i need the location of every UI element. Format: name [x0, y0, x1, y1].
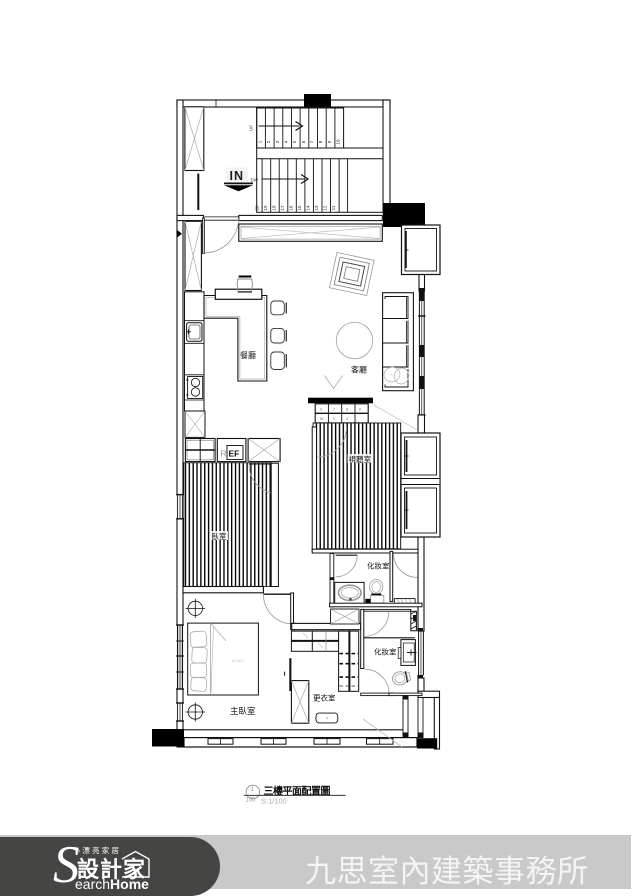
svg-text:視聽室: 視聽室	[349, 454, 372, 464]
svg-text:8: 8	[346, 408, 348, 412]
svg-text:17: 17	[280, 205, 285, 211]
svg-text:10: 10	[336, 139, 341, 145]
svg-text:更衣室: 更衣室	[313, 693, 336, 703]
svg-text:R: R	[221, 449, 227, 459]
svg-text:6: 6	[359, 408, 361, 412]
svg-text:14: 14	[306, 205, 311, 211]
svg-text:20: 20	[255, 205, 260, 211]
svg-text:臥室: 臥室	[212, 531, 227, 541]
svg-text:EF: EF	[229, 449, 240, 459]
svg-text:DW: DW	[251, 178, 259, 183]
svg-text:W: W	[320, 417, 324, 421]
svg-text:客廳: 客廳	[351, 365, 367, 375]
svg-text:100: 100	[246, 798, 257, 804]
svg-text:6'2x6'2: 6'2x6'2	[232, 658, 245, 663]
svg-text:18: 18	[271, 205, 276, 211]
svg-text:12: 12	[323, 205, 328, 211]
svg-text:9: 9	[320, 408, 322, 412]
svg-text:餐廳: 餐廳	[240, 350, 256, 360]
svg-text:S:1/100: S:1/100	[261, 797, 287, 806]
svg-text:19: 19	[263, 205, 268, 211]
svg-text:15: 15	[297, 205, 302, 211]
svg-text:化妝室: 化妝室	[374, 647, 397, 657]
svg-text:11: 11	[331, 205, 336, 210]
svg-text:IN: IN	[230, 169, 245, 183]
svg-text:7: 7	[333, 408, 335, 412]
svg-text:16: 16	[289, 205, 294, 211]
svg-text:1: 1	[251, 787, 254, 793]
svg-text:主臥室: 主臥室	[230, 706, 256, 716]
svg-text:UP: UP	[249, 125, 254, 131]
svg-text:13: 13	[314, 205, 319, 211]
svg-text:化妝室: 化妝室	[367, 561, 390, 571]
